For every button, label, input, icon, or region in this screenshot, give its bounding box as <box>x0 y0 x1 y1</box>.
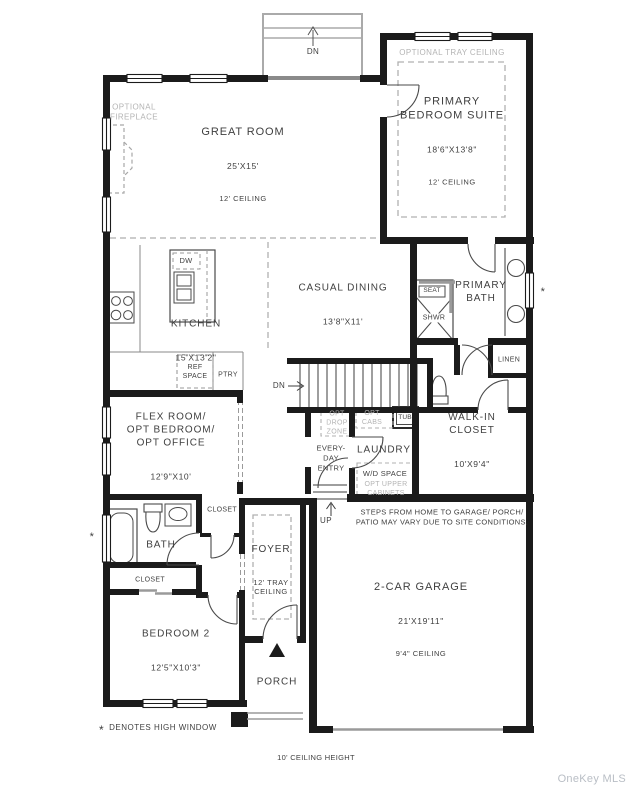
room-dims: 25'X15' <box>201 161 284 172</box>
room-dims: 13'8"X11' <box>298 316 387 327</box>
shower-label: SHWR <box>422 313 447 322</box>
room-name: CASUAL DINING <box>298 281 387 294</box>
window <box>103 443 111 475</box>
everyday-entry-label: EVERY- DAY ENTRY <box>317 443 346 472</box>
legend-text: DENOTES HIGH WINDOW <box>109 723 217 732</box>
onekey-mls-watermark: OneKey MLS <box>558 772 626 786</box>
room-name: LAUNDRY <box>357 444 411 457</box>
window <box>177 700 207 708</box>
room-ceiling: 12' CEILING <box>201 194 284 204</box>
window <box>458 33 492 41</box>
legend-asterisk: * <box>99 723 104 737</box>
bedroom2-door-arc <box>208 595 237 624</box>
room-label-garage: 2-CAR GARAGE 21'X19'11" 9'4" CEILING <box>374 559 468 679</box>
optional-fireplace-label: OPTIONAL FIREPLACE <box>110 103 158 124</box>
room-name: PRIMARY BATH <box>455 279 507 305</box>
ref-space-label: REF SPACE <box>183 363 208 381</box>
bedroom2-closet-label: CLOSET <box>135 575 165 584</box>
room-dims: 21'X19'11" <box>374 616 468 627</box>
primary-vanity <box>505 248 525 336</box>
hall-closet-label: CLOSET <box>207 505 237 514</box>
high-window-asterisk-right: * <box>541 285 546 299</box>
ceiling-height-note: 10' CEILING HEIGHT <box>277 753 355 763</box>
room-name: PRIMARY BEDROOM SUITE <box>400 95 504 124</box>
room-label-great-room: GREAT ROOM 25'X15' 12' CEILING <box>201 104 284 224</box>
room-label-foyer: FOYER 12' TRAY CEILING <box>252 522 291 618</box>
laundry-tub-label: TUB <box>398 414 412 422</box>
dn-stoop-label: DN <box>307 47 319 57</box>
opt-upper-cabinets-label: OPT UPPER CABINETS <box>364 480 407 498</box>
window <box>190 75 227 83</box>
room-name: BEDROOM 2 <box>142 627 210 640</box>
shower-seat-label: SEAT <box>423 287 440 295</box>
cooktop-symbol <box>107 292 134 323</box>
room-name: 2-CAR GARAGE <box>374 580 468 594</box>
room-name: WALK-IN CLOSET <box>448 411 496 437</box>
sink-symbol <box>508 260 525 277</box>
room-ceiling: 12' TRAY CEILING <box>252 578 291 598</box>
room-name: FOYER <box>252 543 291 556</box>
window <box>103 197 111 232</box>
dishwasher-label: DW <box>179 256 192 266</box>
room-dims: 12'5"X10'3" <box>142 662 210 673</box>
optional-tray-ceiling-label: OPTIONAL TRAY CEILING <box>399 48 504 58</box>
room-label-casual-dining: CASUAL DINING 13'8"X11' <box>298 260 387 347</box>
window <box>143 700 173 708</box>
window <box>127 75 162 83</box>
dn-stairs-label: DN <box>273 381 285 391</box>
room-name: KITCHEN <box>171 317 221 330</box>
room-name: PORCH <box>257 676 298 689</box>
room-label-flex-room: FLEX ROOM/ OPT BEDROOM/ OPT OFFICE 12'9"… <box>127 389 215 502</box>
room-dims: 15'X13'2" <box>171 352 221 363</box>
high-window <box>103 515 111 562</box>
room-dims: 12'9"X10' <box>127 471 215 482</box>
hall-closet-door-arc <box>211 535 234 558</box>
high-window-asterisk-left: * <box>90 530 95 544</box>
floorplan-linework <box>0 0 629 789</box>
wd-space-label: W/D SPACE <box>363 469 407 479</box>
room-label-porch: PORCH <box>257 655 298 710</box>
room-name: BATH <box>146 539 176 552</box>
room-dims: 18'6"X13'8" <box>400 145 504 156</box>
room-label-walkin-closet: WALK-IN CLOSET 10'X9'4" <box>448 390 496 490</box>
sink-symbol <box>508 306 525 323</box>
room-ceiling: 12' CEILING <box>400 178 504 188</box>
steps-disclaimer-note: STEPS FROM HOME TO GARAGE/ PORCH/ PATIO … <box>356 507 528 527</box>
room-label-bath2: BATH <box>146 518 176 573</box>
room-label-primary-bath: PRIMARY BATH <box>455 258 507 326</box>
room-label-primary-bedroom: PRIMARY BEDROOM SUITE 18'6"X13'8" 12' CE… <box>400 74 504 209</box>
room-ceiling: 9'4" CEILING <box>374 649 468 659</box>
window <box>103 407 111 438</box>
primary-bedroom-door-gap <box>379 85 388 117</box>
high-window <box>526 273 534 308</box>
room-name: FLEX ROOM/ OPT BEDROOM/ OPT OFFICE <box>127 410 215 449</box>
up-arrow-garage <box>327 503 336 517</box>
up-label: UP <box>320 516 332 526</box>
pantry-label: PTRY <box>218 370 238 379</box>
dn-arrow-stairs <box>288 382 304 391</box>
floorplan: OPTIONAL FIREPLACE DN GREAT ROOM 25'X15'… <box>0 0 629 789</box>
room-name: GREAT ROOM <box>201 125 284 139</box>
window <box>415 33 450 41</box>
high-window-legend: *DENOTES HIGH WINDOW <box>99 718 217 739</box>
opt-drop-zone-label: OPT DROP ZONE <box>326 409 347 436</box>
room-dims: 10'X9'4" <box>448 458 496 469</box>
main-stairs <box>300 364 417 407</box>
linen-label: LINEN <box>498 355 520 364</box>
floorplan-page: { "plan": { "rooms": { "great_room": {"n… <box>0 0 629 789</box>
room-label-bedroom2: BEDROOM 2 12'5"X10'3" <box>142 606 210 693</box>
